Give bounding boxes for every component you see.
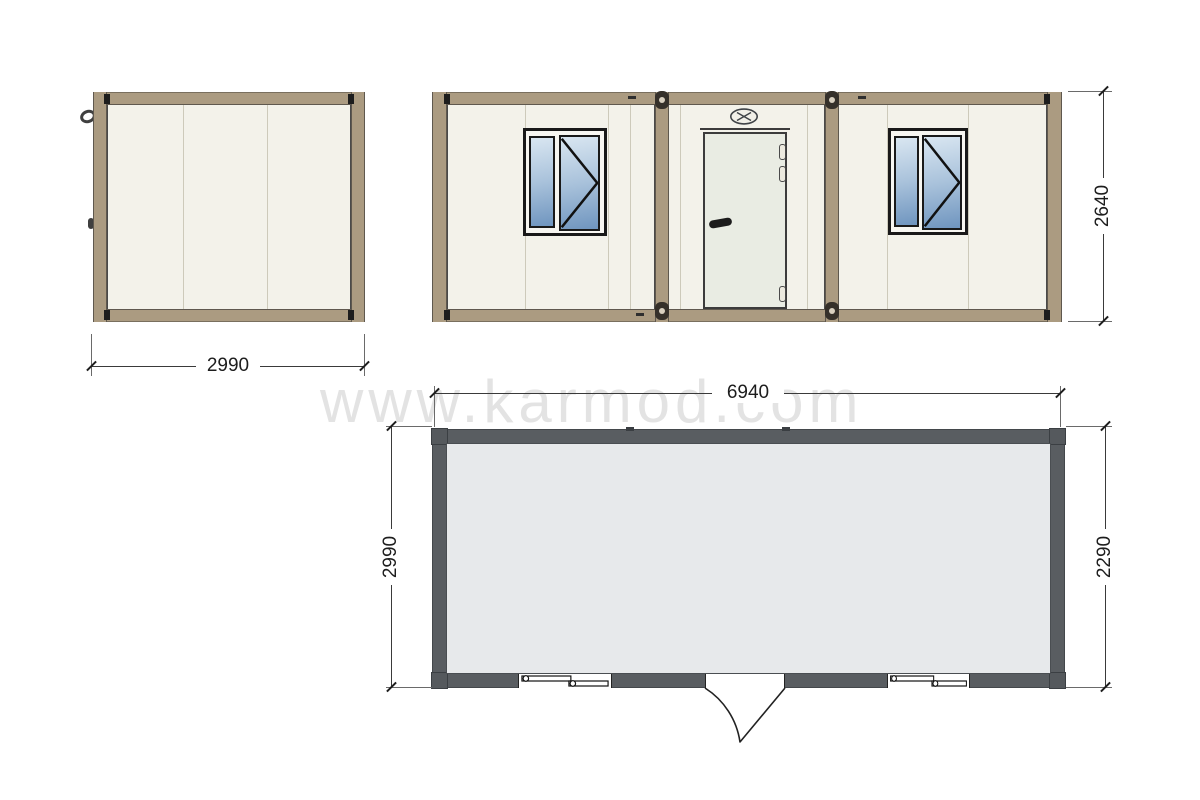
- door-frame-top: [700, 128, 790, 130]
- plan-corner-block: [1049, 428, 1066, 445]
- door-handle: [708, 217, 732, 229]
- plan-door-opening: [705, 674, 785, 688]
- corner-post-right: [1047, 92, 1062, 322]
- plan-corner-block: [431, 672, 448, 689]
- window-pane-fixed: [894, 136, 919, 227]
- dimension-label: 2990: [196, 356, 260, 376]
- corner-post-right: [351, 92, 365, 322]
- door-hinge: [779, 144, 786, 160]
- twist-lock-connector: [825, 91, 839, 109]
- casement-opening-lines: [924, 137, 960, 228]
- front-elevation-view: [432, 92, 1062, 322]
- casement-opening-lines: [561, 137, 598, 229]
- window-pane-casement: [559, 135, 600, 231]
- extension-line: [364, 334, 365, 376]
- extension-line: [91, 334, 92, 376]
- window: [888, 128, 968, 235]
- beam-mark: [636, 313, 644, 316]
- corner-post-left: [93, 92, 107, 322]
- frame-beam-top: [93, 92, 365, 105]
- dimension-label: 2640: [1093, 178, 1113, 234]
- frame-beam-bottom: [93, 309, 365, 322]
- plan-door-swing: [702, 687, 790, 749]
- door-hinge: [779, 166, 786, 182]
- corner-casting: [104, 94, 110, 104]
- extension-line: [386, 687, 432, 688]
- door: [703, 132, 787, 309]
- panel-seam: [680, 105, 681, 309]
- panel-seam: [608, 105, 609, 309]
- door-hinge: [779, 286, 786, 302]
- vent-icon: [729, 108, 759, 125]
- corner-casting: [1044, 94, 1050, 104]
- side-elevation-view: [93, 92, 365, 322]
- plan-corner-block: [1049, 672, 1066, 689]
- corner-casting: [348, 94, 354, 104]
- frame-beam-bottom: [432, 309, 1062, 322]
- plan-window-symbol: [887, 674, 970, 688]
- module-joint-post: [825, 92, 839, 322]
- dimension-label: 6940: [712, 383, 784, 403]
- panel-seam: [183, 105, 184, 309]
- sliding-window-glyph: [888, 674, 969, 688]
- twist-lock-connector: [655, 91, 669, 109]
- module-joint-post: [655, 92, 669, 322]
- window-pane-fixed: [529, 136, 555, 228]
- plan-joint-mark: [626, 427, 634, 431]
- dimension-label: 2990: [381, 529, 401, 585]
- plan-joint-mark: [782, 427, 790, 431]
- corner-casting: [1044, 310, 1050, 320]
- beam-mark: [628, 96, 636, 99]
- corner-casting: [444, 94, 450, 104]
- panel-seam: [267, 105, 268, 309]
- wall-panel: [107, 105, 351, 309]
- panel-seam: [968, 105, 969, 309]
- corner-casting: [444, 310, 450, 320]
- sliding-window-glyph: [519, 674, 611, 688]
- twist-lock-connector: [825, 302, 839, 320]
- window-pane-casement: [922, 135, 962, 230]
- corner-casting: [348, 310, 354, 320]
- corner-casting: [104, 310, 110, 320]
- panel-seam: [807, 105, 808, 309]
- twist-lock-connector: [655, 302, 669, 320]
- extension-line: [1068, 91, 1112, 92]
- dimension-label: 2290: [1095, 529, 1115, 585]
- extension-line: [1068, 321, 1112, 322]
- frame-beam-top: [432, 92, 1062, 105]
- plan-floor: [446, 443, 1051, 674]
- floor-plan-view: [432, 429, 1065, 688]
- panel-seam: [630, 105, 631, 309]
- extension-line: [386, 426, 432, 427]
- corner-post-left: [432, 92, 447, 322]
- container-house-technical-drawing: www.karmod.com 2990: [0, 0, 1200, 800]
- window: [523, 128, 607, 236]
- plan-window-symbol: [518, 674, 612, 688]
- beam-mark: [858, 96, 866, 99]
